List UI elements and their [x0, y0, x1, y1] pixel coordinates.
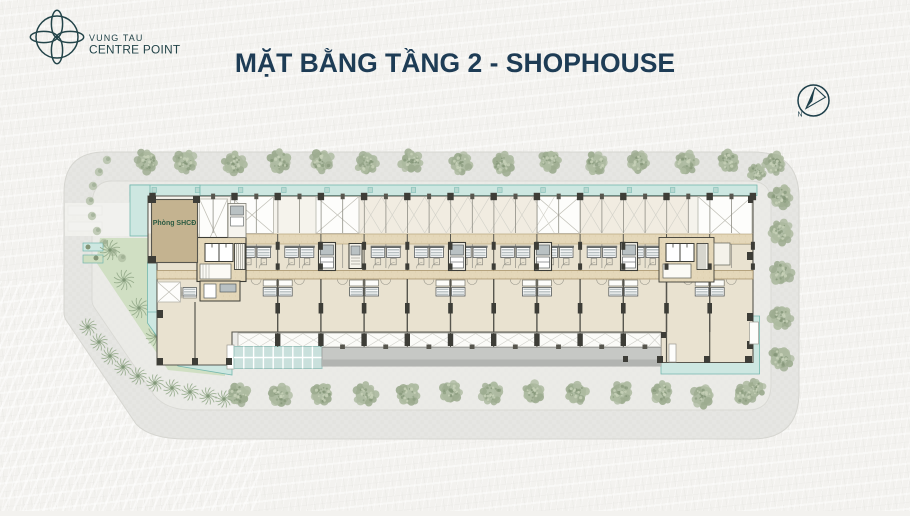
svg-text:CENTRE POINT: CENTRE POINT [89, 43, 180, 57]
svg-text:N: N [798, 112, 803, 119]
svg-text:VUNG TAU: VUNG TAU [89, 33, 143, 43]
svg-text:Phòng SHCĐ: Phòng SHCĐ [153, 220, 197, 227]
svg-text:MẶT BẰNG TẦNG 2 - SHOPHOUSE: MẶT BẰNG TẦNG 2 - SHOPHOUSE [235, 48, 675, 78]
